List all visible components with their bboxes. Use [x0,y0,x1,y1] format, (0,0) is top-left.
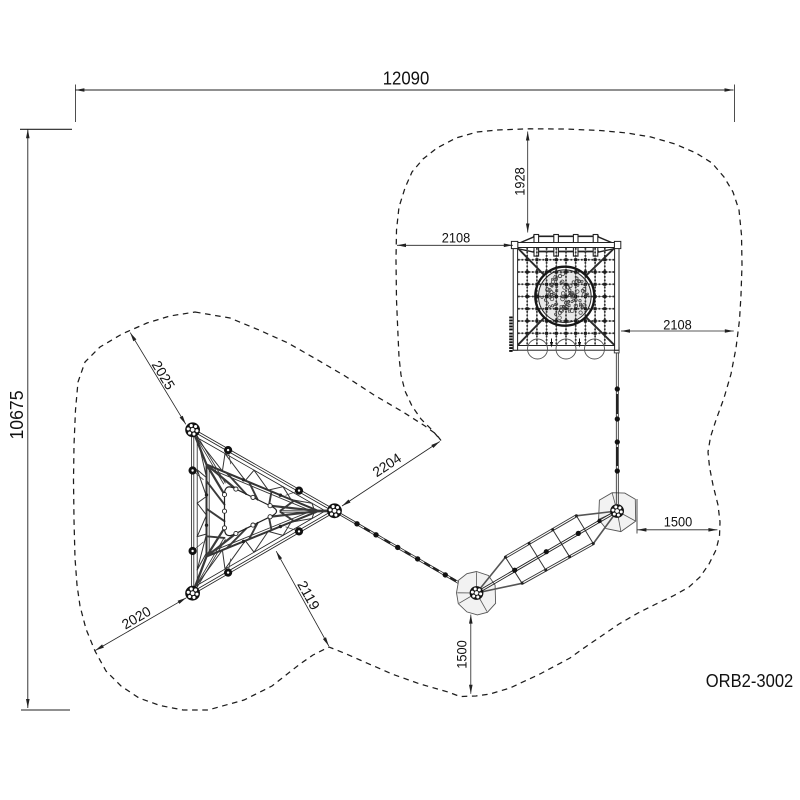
svg-text:12090: 12090 [383,68,430,88]
svg-text:1928: 1928 [511,167,527,196]
svg-text:1500: 1500 [664,514,693,530]
svg-text:10675: 10675 [7,391,27,440]
svg-text:ORB2-3002: ORB2-3002 [706,671,794,691]
svg-text:1500: 1500 [453,640,469,669]
svg-text:2108: 2108 [663,316,692,332]
svg-text:2108: 2108 [442,230,471,246]
